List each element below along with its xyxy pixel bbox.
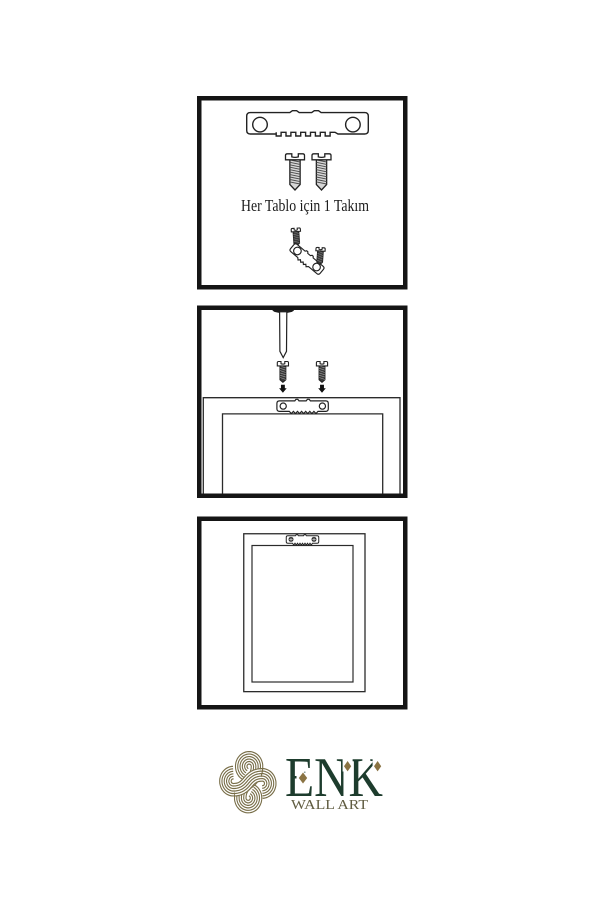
- svg-text:Her Tablo için 1 Takım: Her Tablo için 1 Takım: [241, 196, 369, 215]
- svg-text:WALL ART: WALL ART: [291, 797, 368, 812]
